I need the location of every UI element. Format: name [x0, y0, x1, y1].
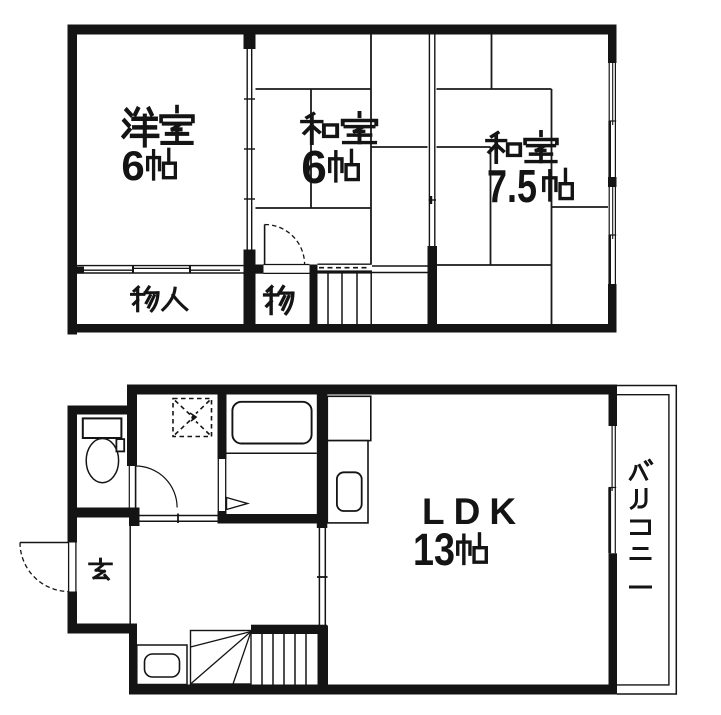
- svg-text:13: 13: [413, 524, 455, 575]
- svg-text:7.5: 7.5: [487, 160, 537, 212]
- svg-text:6: 6: [301, 141, 327, 193]
- svg-text:6: 6: [121, 142, 144, 189]
